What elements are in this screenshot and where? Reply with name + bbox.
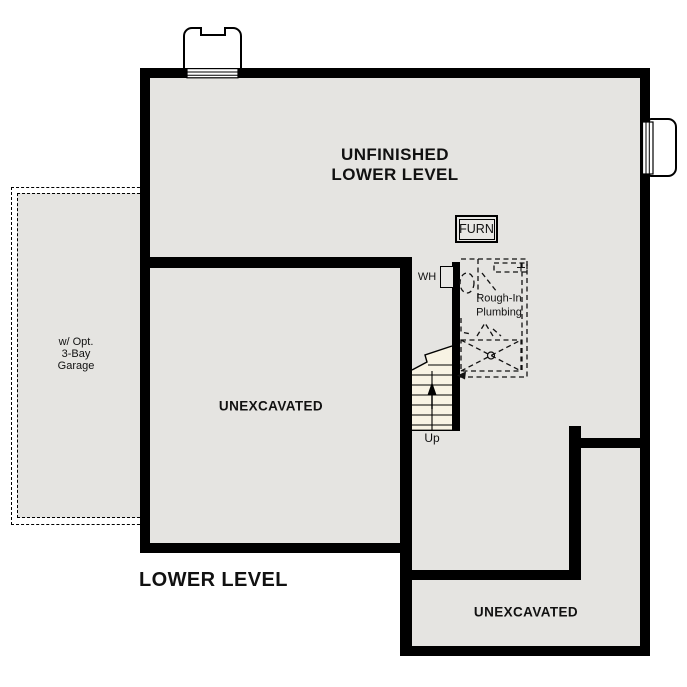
- main-area-label-line2: LOWER LEVEL: [331, 165, 458, 185]
- up-label: Up: [424, 431, 439, 445]
- water-heater-box: [440, 266, 454, 288]
- window-well-right: [648, 118, 677, 177]
- plumbing-label-line1: Rough-In: [476, 293, 522, 307]
- main-area-label-line1: UNFINISHED: [331, 145, 458, 165]
- window-well-top-notch: [200, 27, 226, 36]
- floor-plan: FURN WH UNFINISHED LOWER LEVEL Rough-In …: [0, 0, 687, 687]
- garage-label-line2: 3-Bay: [58, 348, 95, 360]
- wall-right: [640, 68, 650, 656]
- wall-left: [140, 68, 150, 553]
- water-heater-label: WH: [418, 271, 436, 283]
- plumbing-label: Rough-In Plumbing: [476, 293, 522, 320]
- unexcavated-left-label: UNEXCAVATED: [219, 399, 323, 414]
- garage-label-line3: Garage: [58, 360, 95, 372]
- wall-interior-horizontal: [140, 257, 412, 268]
- wall-bottom: [400, 646, 650, 656]
- wall-left-room-bottom: [140, 543, 411, 553]
- unexcavated-bottom-label: UNEXCAVATED: [474, 605, 578, 620]
- garage-label-line1: w/ Opt.: [58, 336, 95, 348]
- main-area-label: UNFINISHED LOWER LEVEL: [331, 145, 458, 185]
- floor-center-area: [406, 263, 645, 575]
- plumbing-label-line2: Plumbing: [476, 306, 522, 320]
- wall-interior-vertical: [400, 257, 412, 656]
- page-title: LOWER LEVEL: [139, 569, 288, 592]
- wall-bottom-center: [400, 570, 581, 580]
- furnace-label: FURN: [459, 219, 495, 240]
- garage-label: w/ Opt. 3-Bay Garage: [58, 336, 95, 372]
- wall-top: [140, 68, 650, 78]
- wall-right-stub: [578, 438, 650, 448]
- furnace-box: FURN: [455, 215, 498, 243]
